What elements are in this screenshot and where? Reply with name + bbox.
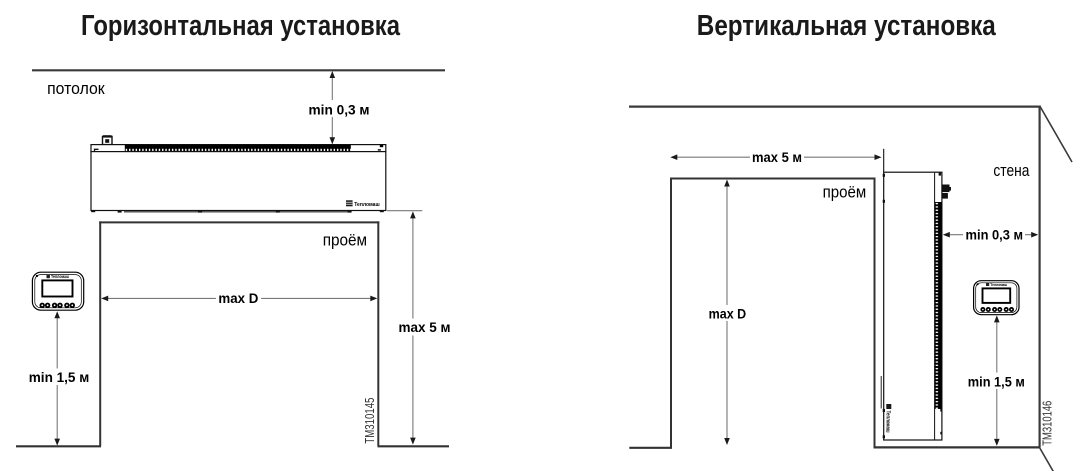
svg-text:max D: max D bbox=[218, 290, 258, 306]
svg-text:Тепломаш: Тепломаш bbox=[990, 282, 1008, 287]
svg-text:min 0,3 м: min 0,3 м bbox=[966, 227, 1024, 243]
svg-text:max 5 м: max 5 м bbox=[399, 319, 451, 335]
svg-text:min 1,5 м: min 1,5 м bbox=[29, 369, 90, 385]
svg-text:min 1,5 м: min 1,5 м bbox=[968, 373, 1025, 389]
svg-text:TM310145: TM310145 bbox=[362, 398, 377, 444]
svg-text:max 5 м: max 5 м bbox=[752, 149, 802, 165]
svg-text:TM310146: TM310146 bbox=[1039, 401, 1054, 446]
svg-text:min 0,3 м: min 0,3 м bbox=[309, 102, 370, 118]
svg-text:Горизонтальная установка: Горизонтальная установка bbox=[81, 10, 401, 42]
svg-text:Тепломаш: Тепломаш bbox=[885, 411, 891, 433]
svg-text:max D: max D bbox=[709, 305, 747, 321]
svg-text:Тепломаш: Тепломаш bbox=[354, 202, 380, 208]
svg-text:потолок: потолок bbox=[47, 80, 105, 98]
svg-text:проём: проём bbox=[823, 184, 867, 202]
svg-text:Вертикальная установка: Вертикальная установка bbox=[697, 10, 997, 42]
svg-text:Тепломаш: Тепломаш bbox=[51, 274, 69, 279]
svg-text:проём: проём bbox=[323, 232, 367, 250]
svg-text:стена: стена bbox=[993, 162, 1030, 180]
